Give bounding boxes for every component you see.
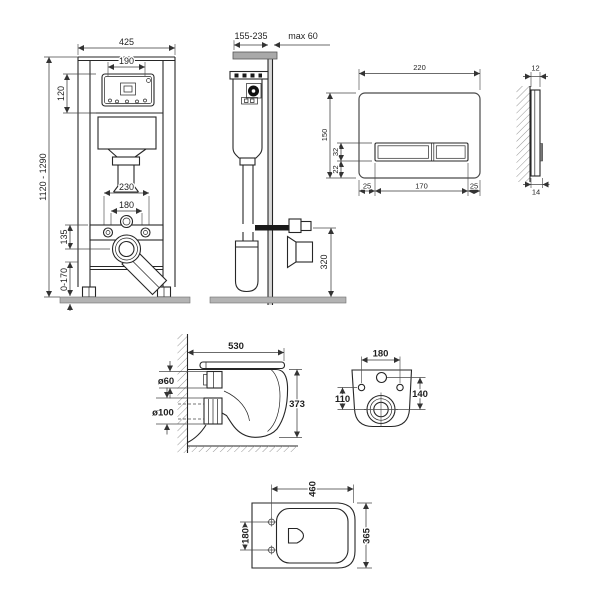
dim-depth-range: 155-235	[234, 31, 267, 41]
dim-port-span: 140	[412, 389, 428, 400]
bowl-top-view: 460 180 365	[240, 481, 373, 568]
fill-valve-dot	[252, 89, 256, 93]
wall-hatch-bowl	[178, 334, 188, 453]
waste-outlet-front	[113, 235, 167, 295]
dim-feet-range: 0-170	[59, 268, 69, 291]
flush-plate-front-view: 220 150 32 22 25 170 25	[320, 63, 480, 196]
dim-rod-span: 180	[119, 200, 134, 210]
dim-plate-height: 150	[320, 129, 329, 142]
dim-top-depth: 460	[308, 481, 319, 497]
inlet-fitting	[121, 216, 133, 228]
dim-window-height: 120	[56, 86, 66, 101]
inlet-hole	[377, 373, 387, 383]
plate-body	[359, 93, 480, 178]
top-mount-holes	[267, 518, 276, 555]
frame-front-view: 425 190 120 1120 - 1290 230 180 135	[38, 37, 190, 311]
cistern-front	[98, 117, 156, 192]
top-hole-lower-cross	[267, 546, 276, 555]
dim-button-offset: 22	[331, 165, 340, 173]
outlet-bell	[288, 237, 297, 268]
dim-frame-width: 425	[119, 37, 134, 47]
mount-hole-right	[397, 384, 403, 390]
trap-body	[236, 241, 259, 292]
access-window	[102, 74, 154, 106]
flush-valve-top	[121, 83, 136, 95]
dim-outlet-diameter: ø100	[152, 408, 174, 419]
dim-button-height: 32	[331, 148, 340, 156]
wall-fill	[268, 59, 273, 305]
top-hole-upper-cross	[267, 518, 276, 527]
frame-side-view: 155-235 max 60 320	[210, 31, 346, 305]
outlet-stub	[296, 242, 313, 262]
dim-inlet-diameter: ø60	[158, 376, 174, 387]
outlet-crosshair	[364, 393, 398, 427]
supply-fitting-large	[289, 219, 301, 233]
dim-margin-right: 25	[470, 182, 478, 191]
actuator-buttons	[245, 99, 255, 103]
bowl-shell	[188, 370, 288, 438]
floor-bar-side	[210, 297, 346, 303]
dim-plate-width: 220	[413, 63, 426, 72]
top-bracket	[233, 52, 277, 59]
technical-drawing: 425 190 120 1120 - 1290 230 180 135	[0, 0, 600, 600]
drain-shape	[289, 529, 304, 544]
installation-drawing-sheet: 425 190 120 1120 - 1290 230 180 135	[0, 0, 600, 600]
dim-anchor-span: 230	[119, 182, 134, 192]
pipe-collar	[113, 157, 140, 165]
bolt-left	[104, 228, 113, 237]
dim-outlet-drop: 135	[59, 229, 69, 244]
floor-hatch	[188, 446, 298, 452]
window-fittings	[109, 79, 151, 104]
supply-pipe	[255, 225, 289, 231]
plate-side-ext	[531, 72, 543, 188]
bowl-inner-front	[268, 370, 281, 432]
supply-fitting-small	[301, 222, 311, 231]
dim-opening-width: 190	[119, 56, 134, 66]
cistern-panel	[98, 117, 156, 149]
plate-side-dim-bridge	[531, 77, 543, 185]
outlet-connector-ribs	[209, 399, 218, 424]
plate-side-bar	[531, 90, 540, 176]
flush-plate-side-view: 12 14	[517, 64, 550, 197]
dim-hole-height: 110	[335, 394, 350, 405]
mount-hole-left	[358, 384, 364, 390]
pipe-collar-side	[240, 158, 255, 165]
bowl-rim	[277, 509, 349, 564]
bowl-side-view: ø60 ø100 530 373	[152, 334, 305, 453]
dim-wall-max: max 60	[288, 31, 318, 41]
dim-bowl-depth: 530	[228, 341, 244, 352]
dim-bowl-height: 373	[289, 399, 305, 410]
wall-hatch	[517, 86, 530, 182]
bowl-rear-underside	[188, 425, 207, 443]
dim-outlet-height: 320	[319, 254, 329, 269]
dim-top-hole-span: 180	[241, 528, 252, 544]
inlet-outer	[121, 216, 133, 228]
dim-top-width: 365	[362, 527, 373, 544]
bowl-rear-body	[352, 370, 412, 427]
dim-margin-left: 25	[363, 182, 371, 191]
valve-detail	[124, 86, 132, 92]
dim-button-span: 170	[415, 182, 428, 191]
dim-plate-thickness: 12	[531, 64, 539, 73]
actuator-box	[242, 98, 258, 105]
flush-pipe-side	[243, 165, 253, 241]
dim-height-range: 1120 - 1290	[38, 153, 48, 200]
cistern-taper	[108, 149, 146, 157]
trap-curve	[224, 391, 250, 421]
dim-plate-total-thickness: 14	[532, 188, 540, 197]
bolt-right	[141, 228, 150, 237]
seat-profile	[200, 362, 285, 369]
inlet-spigot	[207, 372, 222, 389]
bowl-rear-view: 180 110 140	[335, 349, 428, 427]
button-bump	[540, 144, 543, 162]
ext-lines-upper	[44, 44, 175, 297]
floor-bar-front	[60, 297, 190, 303]
dim-hole-span: 180	[373, 349, 389, 360]
outlet-flange-outer	[113, 235, 141, 263]
